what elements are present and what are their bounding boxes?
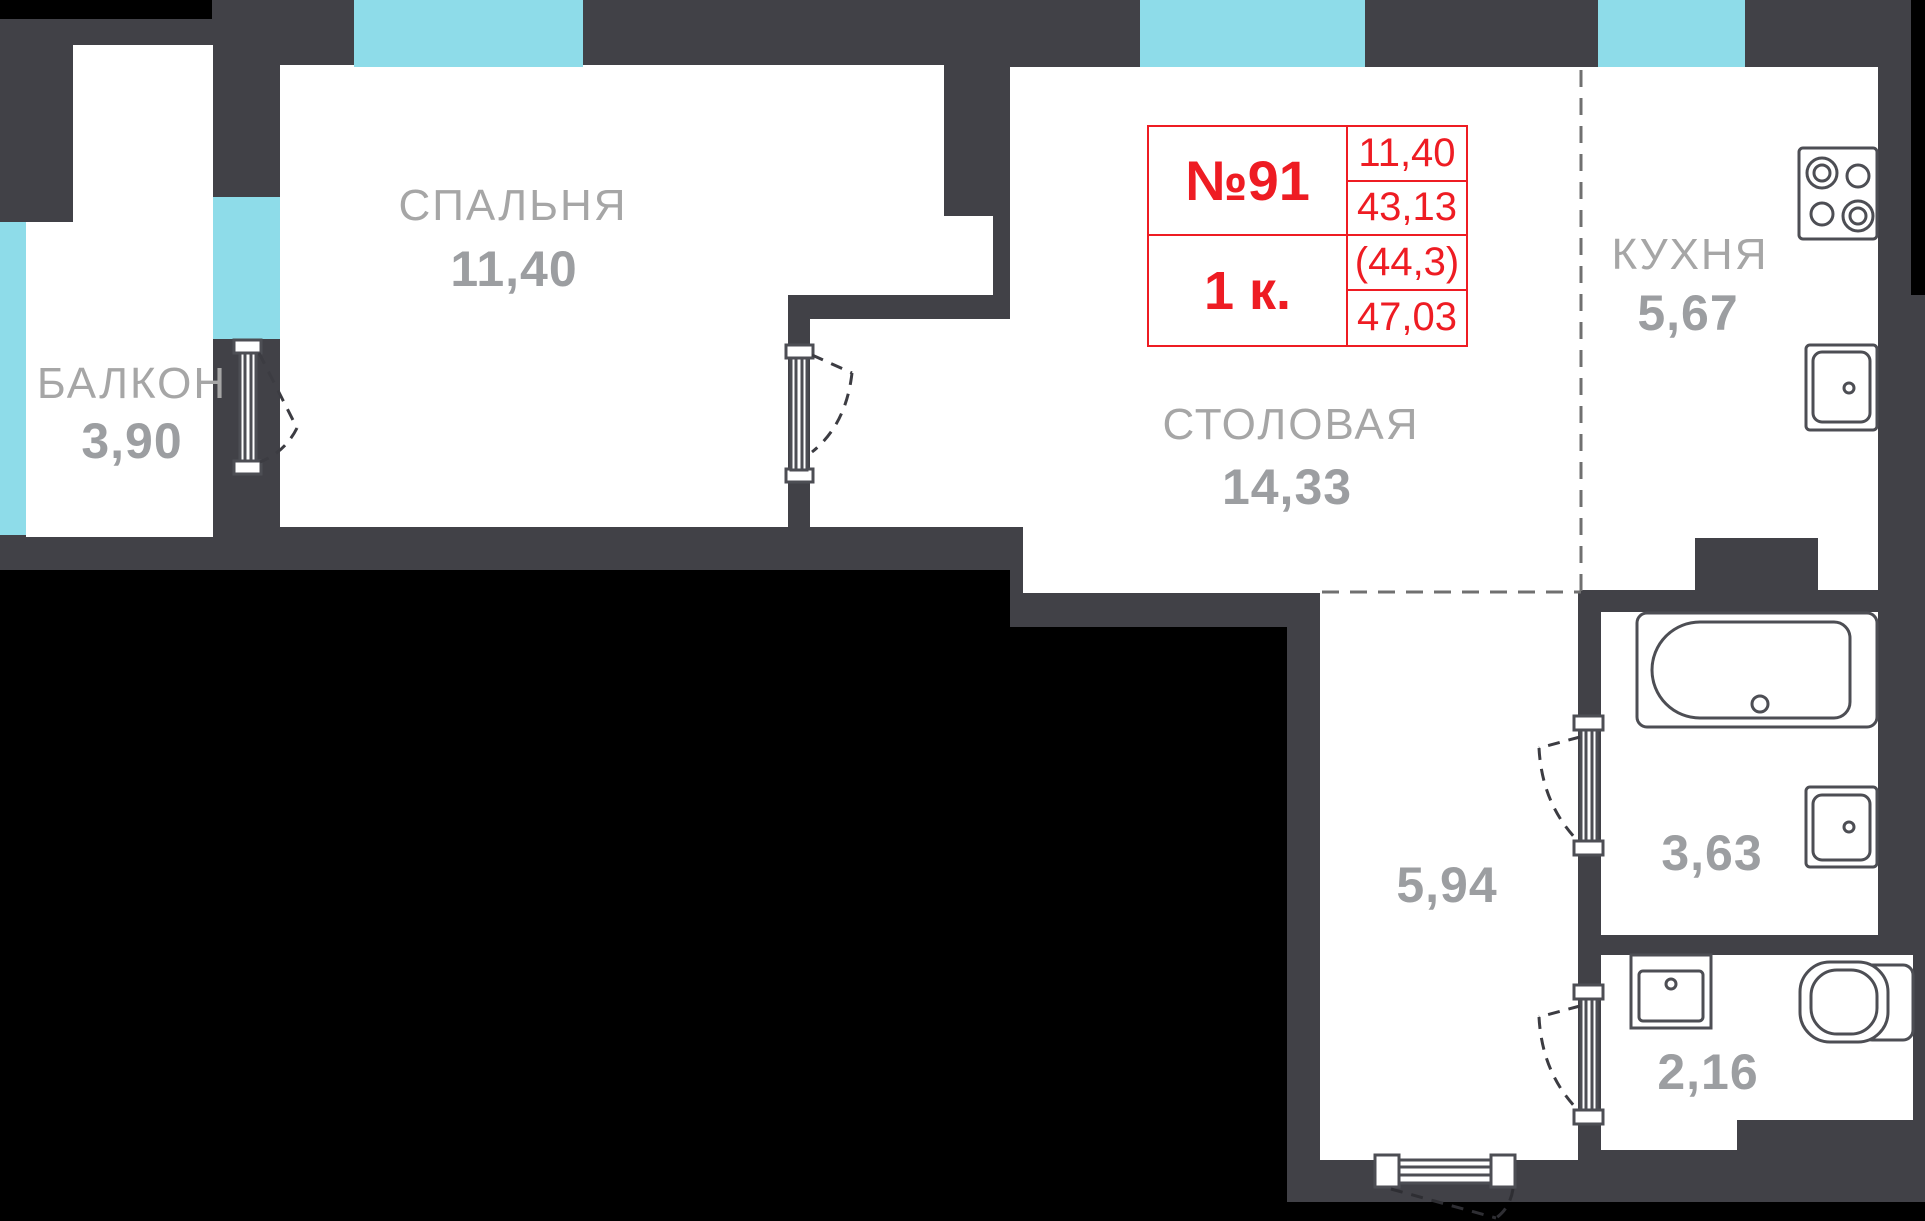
door-toilet xyxy=(1539,985,1603,1124)
toilet-sink xyxy=(1631,955,1711,1028)
bathtub xyxy=(1637,613,1877,727)
plan-linework xyxy=(0,0,1925,1221)
floor-plan: БАЛКОН 3,90 СПАЛЬНЯ 11,40 СТОЛОВАЯ 14,33… xyxy=(0,0,1925,1221)
door-bedroom xyxy=(786,345,852,482)
unit-metric-total: 47,03 xyxy=(1348,291,1466,346)
area-bathroom: 3,63 xyxy=(1661,824,1762,882)
area-dining: 14,33 xyxy=(1222,458,1352,516)
unit-info-card: №91 1 к. 11,40 43,13 (44,3) 47,03 xyxy=(1147,125,1468,347)
unit-number: №91 xyxy=(1149,127,1348,236)
label-dining: СТОЛОВАЯ xyxy=(1162,400,1419,450)
unit-metric-living: 11,40 xyxy=(1348,127,1466,182)
kitchen-sink xyxy=(1806,345,1877,430)
unit-type: 1 к. xyxy=(1149,236,1348,345)
area-kitchen: 5,67 xyxy=(1637,284,1738,342)
unit-metric-area: 43,13 xyxy=(1348,182,1466,237)
bathroom-sink xyxy=(1806,787,1877,867)
area-hallway: 5,94 xyxy=(1396,856,1497,914)
stove xyxy=(1799,148,1877,239)
label-balcony: БАЛКОН xyxy=(37,359,227,409)
door-balcony xyxy=(234,340,297,474)
door-bathroom xyxy=(1539,716,1603,855)
area-balcony: 3,90 xyxy=(81,412,182,470)
toilet-bowl xyxy=(1800,962,1913,1042)
label-kitchen: КУХНЯ xyxy=(1612,230,1769,280)
area-toilet: 2,16 xyxy=(1657,1043,1758,1101)
unit-metric-area-coef: (44,3) xyxy=(1348,236,1466,291)
door-entrance xyxy=(1375,1155,1515,1218)
label-bedroom: СПАЛЬНЯ xyxy=(398,181,627,231)
area-bedroom: 11,40 xyxy=(450,240,577,298)
